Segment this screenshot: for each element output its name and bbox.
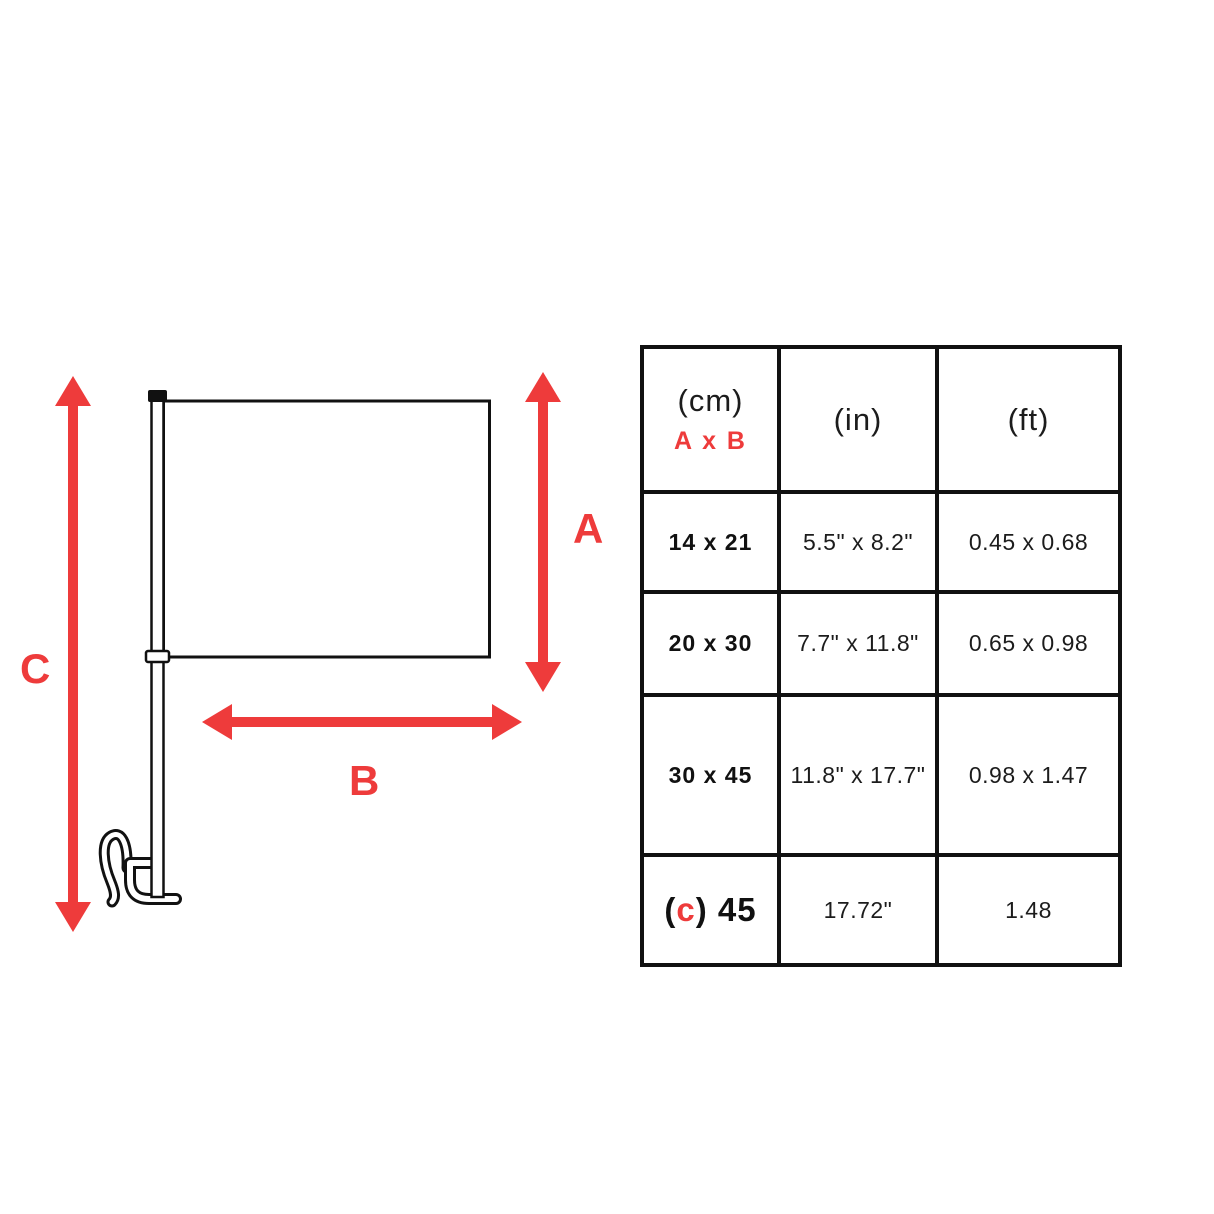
row4-cm: (c) 45 xyxy=(642,855,779,965)
a-arrow-head-up xyxy=(525,372,561,402)
flag-pole xyxy=(152,397,164,897)
row4-cm-c: c xyxy=(676,891,695,928)
dim-label-a: A xyxy=(573,508,603,550)
header-cell-in: (in) xyxy=(779,347,937,492)
b-dimension-arrow xyxy=(202,704,522,740)
c-arrow-head-down xyxy=(55,902,91,932)
header-cell-cm: (cm) A x B xyxy=(642,347,779,492)
row2-feet: 0.65 x 0.98 xyxy=(937,592,1120,695)
dim-label-b: B xyxy=(349,760,379,802)
row3-feet: 0.98 x 1.47 xyxy=(937,695,1120,855)
row4-feet: 1.48 xyxy=(937,855,1120,965)
flag-rect xyxy=(164,401,490,657)
pole-joint xyxy=(146,651,169,662)
a-arrow-head-down xyxy=(525,662,561,692)
row4-inch: 17.72" xyxy=(779,855,937,965)
a-dimension-arrow xyxy=(525,372,561,692)
row4-cm-open: ( xyxy=(664,891,676,928)
row3-inch: 11.8" x 17.7" xyxy=(779,695,937,855)
row4-cm-text: (c) 45 xyxy=(664,891,756,929)
c-arrow-head-up xyxy=(55,376,91,406)
size-table: (cm) A x B (in) (ft) 14 x 21 5.5" x 8.2"… xyxy=(640,345,1122,967)
row3-cm: 30 x 45 xyxy=(642,695,779,855)
window-clip xyxy=(104,834,176,902)
a-arrow-shaft xyxy=(538,398,548,666)
b-arrow-head-left xyxy=(202,704,232,740)
axb-formula-label: A x B xyxy=(674,427,747,456)
b-arrow-head-right xyxy=(492,704,522,740)
header-cell-ft: (ft) xyxy=(937,347,1120,492)
cm-unit-label: (cm) xyxy=(678,383,744,419)
row4-cm-rest: ) 45 xyxy=(696,891,757,928)
row2-inch: 7.7" x 11.8" xyxy=(779,592,937,695)
row1-cm: 14 x 21 xyxy=(642,492,779,592)
c-arrow-shaft xyxy=(68,402,78,904)
row2-cm: 20 x 30 xyxy=(642,592,779,695)
row1-inch: 5.5" x 8.2" xyxy=(779,492,937,592)
infographic-canvas: C A B (cm) A x B (in) (ft) 14 x 21 5.5" … xyxy=(0,0,1214,1214)
dim-label-c: C xyxy=(20,648,50,690)
row1-feet: 0.45 x 0.68 xyxy=(937,492,1120,592)
c-dimension-arrow xyxy=(55,376,91,932)
pole-cap xyxy=(148,390,167,402)
b-arrow-shaft xyxy=(228,717,496,727)
